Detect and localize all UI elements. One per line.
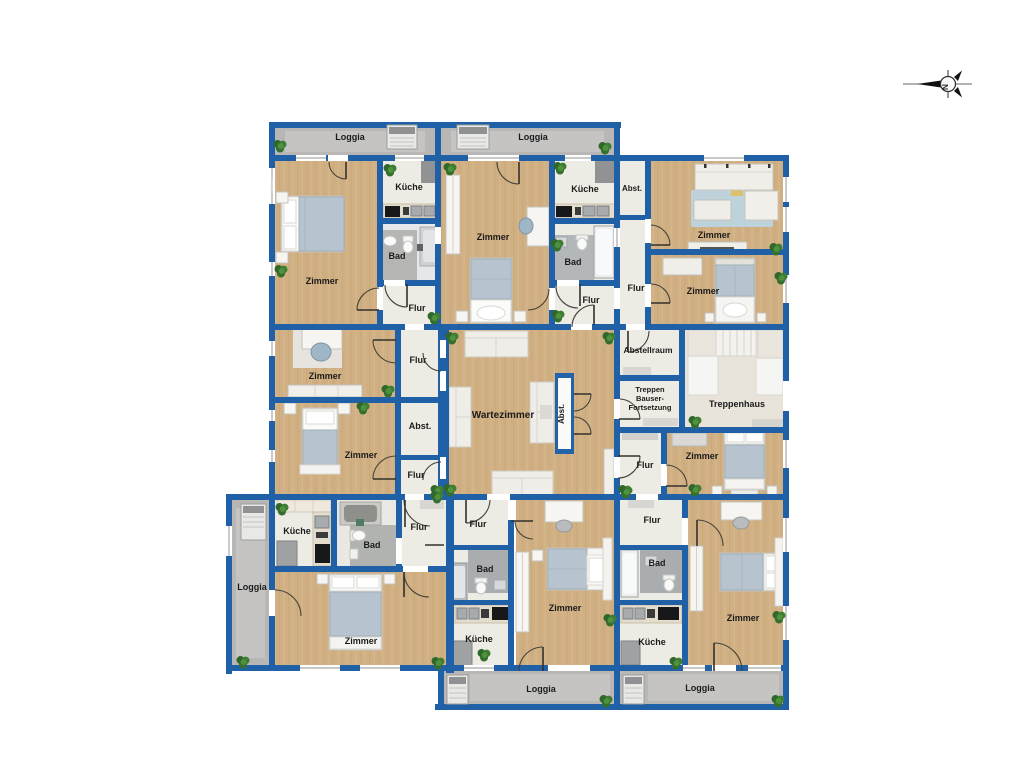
svg-text:Treppen: Treppen (635, 385, 665, 394)
svg-text:Bad: Bad (363, 540, 380, 550)
svg-text:Zimmer: Zimmer (477, 232, 510, 242)
svg-text:Bauser-: Bauser- (636, 394, 664, 403)
svg-text:Zimmer: Zimmer (345, 450, 378, 460)
svg-text:Abst.: Abst. (622, 184, 642, 193)
svg-text:Bad: Bad (564, 257, 581, 267)
svg-text:Zimmer: Zimmer (698, 230, 731, 240)
svg-text:Küche: Küche (638, 637, 666, 647)
svg-text:Wartezimmer: Wartezimmer (472, 410, 535, 421)
svg-text:Küche: Küche (571, 184, 599, 194)
svg-text:Flur: Flur (637, 460, 654, 470)
svg-text:Loggia: Loggia (685, 683, 715, 693)
svg-text:Flur: Flur (409, 303, 426, 313)
svg-text:Flur: Flur (583, 295, 600, 305)
svg-text:Flur: Flur (628, 283, 645, 293)
svg-text:Fortsetzung: Fortsetzung (629, 403, 672, 412)
svg-text:Flur: Flur (408, 470, 425, 480)
svg-text:Zimmer: Zimmer (345, 636, 378, 646)
svg-text:N: N (940, 84, 950, 90)
svg-text:Loggia: Loggia (518, 132, 548, 142)
svg-text:Küche: Küche (283, 526, 311, 536)
svg-text:Bad: Bad (388, 251, 405, 261)
svg-text:Bad: Bad (648, 558, 665, 568)
svg-text:Loggia: Loggia (237, 582, 267, 592)
svg-text:Loggia: Loggia (335, 132, 365, 142)
svg-text:Flur: Flur (411, 522, 428, 532)
svg-text:Abst.: Abst. (409, 421, 432, 431)
svg-text:Flur: Flur (410, 355, 427, 365)
svg-text:Fassade: Fassade (269, 178, 274, 194)
svg-text:Zimmer: Zimmer (549, 603, 582, 613)
svg-text:Bad: Bad (476, 564, 493, 574)
svg-text:Flur: Flur (644, 515, 661, 525)
svg-text:Zimmer: Zimmer (309, 371, 342, 381)
svg-text:Abstellraum: Abstellraum (623, 345, 673, 355)
svg-text:Küche: Küche (395, 182, 423, 192)
svg-text:Treppenhaus: Treppenhaus (709, 399, 765, 409)
svg-text:Loggia: Loggia (526, 684, 556, 694)
svg-text:Flur: Flur (470, 519, 487, 529)
svg-text:Zimmer: Zimmer (687, 286, 720, 296)
svg-text:Zimmer: Zimmer (686, 451, 719, 461)
svg-text:Abst.: Abst. (557, 404, 566, 424)
svg-text:Küche: Küche (465, 634, 493, 644)
svg-text:Zimmer: Zimmer (727, 613, 760, 623)
svg-text:Zimmer: Zimmer (306, 276, 339, 286)
